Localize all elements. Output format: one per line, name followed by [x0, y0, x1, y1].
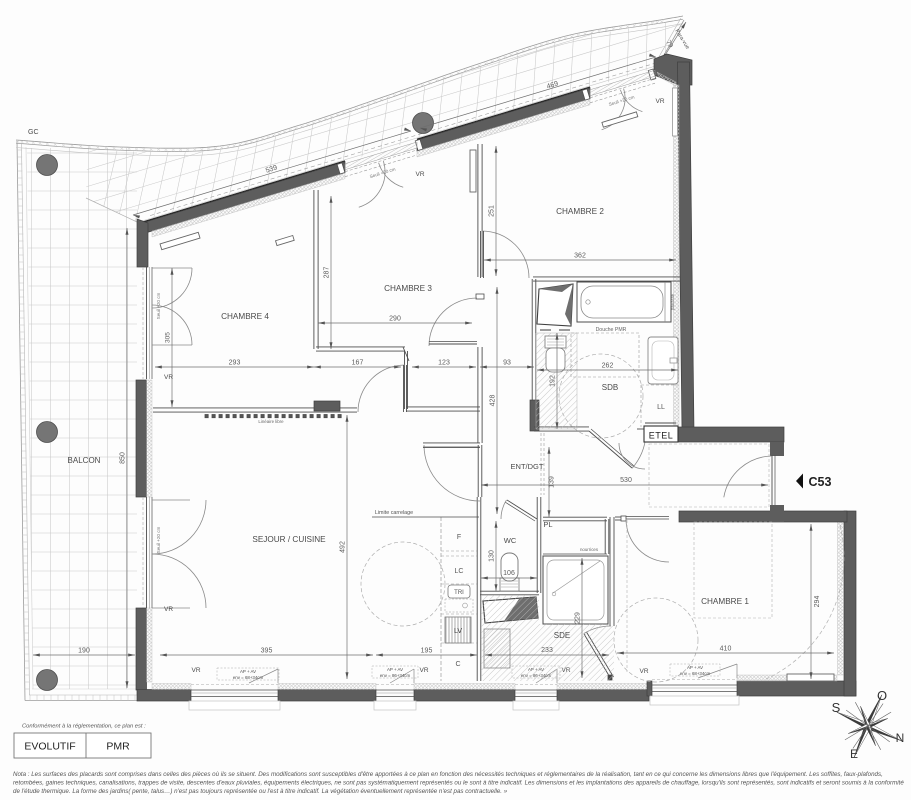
svg-text:251: 251: [489, 205, 496, 217]
svg-text:N: N: [896, 731, 905, 745]
svg-text:F: F: [457, 534, 461, 541]
svg-text:BALCON: BALCON: [68, 456, 101, 465]
svg-text:492: 492: [340, 541, 347, 553]
svg-text:195: 195: [421, 648, 433, 655]
svg-text:VR: VR: [164, 374, 173, 381]
svg-text:env = 68+34cm: env = 68+34cm: [680, 671, 711, 676]
svg-text:de l'étude thermique. La forme: de l'étude thermique. La forme des jardi…: [13, 788, 508, 795]
svg-text:O: O: [877, 688, 887, 703]
svg-text:410: 410: [720, 646, 732, 653]
svg-text:TRI: TRI: [454, 590, 464, 596]
svg-text:WC: WC: [504, 536, 517, 545]
svg-text:VR: VR: [419, 667, 428, 674]
svg-text:EVOLUTIF: EVOLUTIF: [24, 741, 75, 753]
svg-text:362: 362: [574, 253, 586, 260]
svg-text:VR: VR: [191, 667, 200, 674]
svg-text:paillasse: paillasse: [670, 293, 675, 310]
svg-text:ENT/DGT: ENT/DGT: [511, 462, 544, 471]
svg-text:190: 190: [78, 648, 90, 655]
svg-text:C: C: [455, 661, 460, 668]
svg-text:Nota : Les surfaces des placar: Nota : Les surfaces des placards sont co…: [13, 771, 883, 778]
svg-text:Douche PMR: Douche PMR: [596, 327, 627, 333]
svg-text:SEJOUR / CUISINE: SEJOUR / CUISINE: [252, 535, 326, 544]
svg-text:Seuil +20 cm: Seuil +20 cm: [156, 526, 161, 553]
svg-text:VR: VR: [415, 171, 424, 178]
svg-text:530: 530: [620, 477, 632, 484]
svg-text:SDE: SDE: [554, 631, 570, 640]
svg-text:CHAMBRE 1: CHAMBRE 1: [701, 597, 749, 606]
svg-text:CHAMBRE 2: CHAMBRE 2: [556, 207, 604, 216]
svg-text:ETEL: ETEL: [649, 431, 674, 441]
svg-text:GC: GC: [28, 129, 39, 136]
svg-text:305: 305: [165, 332, 172, 343]
svg-text:Conformément à la réglementati: Conformément à la réglementation, ce pla…: [22, 724, 146, 730]
svg-text:123: 123: [438, 360, 450, 367]
svg-text:S: S: [832, 700, 841, 715]
svg-text:VR: VR: [164, 606, 173, 613]
svg-text:VR: VR: [639, 668, 648, 675]
svg-text:395: 395: [261, 648, 273, 655]
svg-text:229: 229: [575, 612, 582, 624]
svg-text:CHAMBRE 3: CHAMBRE 3: [384, 284, 432, 293]
svg-text:850: 850: [120, 452, 127, 464]
svg-text:233: 233: [541, 647, 553, 654]
svg-text:290: 290: [389, 316, 401, 323]
svg-text:LL: LL: [657, 404, 665, 411]
svg-text:Seuil +20 cm: Seuil +20 cm: [156, 292, 161, 319]
svg-text:PMR: PMR: [106, 741, 130, 753]
svg-text:Linéaire libre: Linéaire libre: [258, 419, 284, 424]
svg-text:CHAMBRE 4: CHAMBRE 4: [221, 312, 269, 321]
svg-text:106: 106: [503, 570, 515, 577]
svg-text:PL: PL: [543, 520, 552, 529]
svg-text:93: 93: [503, 360, 511, 367]
svg-text:E: E: [850, 747, 858, 761]
svg-text:AP + AV: AP + AV: [240, 669, 256, 674]
svg-text:130: 130: [489, 550, 496, 562]
svg-text:C53: C53: [809, 475, 832, 489]
svg-text:env = 86+34cm: env = 86+34cm: [380, 673, 411, 678]
svg-text:env = 68+34cm: env = 68+34cm: [233, 675, 264, 680]
svg-text:167: 167: [352, 360, 364, 367]
svg-text:192: 192: [550, 375, 557, 387]
svg-text:SDB: SDB: [602, 383, 618, 392]
svg-text:nourrices: nourrices: [580, 547, 599, 552]
svg-text:139: 139: [549, 476, 556, 488]
svg-text:262: 262: [602, 363, 614, 370]
svg-text:293: 293: [229, 360, 241, 367]
svg-text:retombées, gaines techniques,: retombées, gaines techniques, canalisati…: [13, 780, 904, 787]
svg-text:AP + AV: AP + AV: [387, 667, 403, 672]
svg-text:428: 428: [490, 395, 497, 407]
svg-text:VR: VR: [655, 98, 664, 105]
svg-text:287: 287: [324, 267, 331, 279]
svg-text:LV: LV: [454, 628, 462, 635]
svg-text:294: 294: [814, 596, 821, 608]
svg-text:Limite carrelage: Limite carrelage: [375, 510, 413, 516]
svg-text:LC: LC: [455, 568, 464, 575]
